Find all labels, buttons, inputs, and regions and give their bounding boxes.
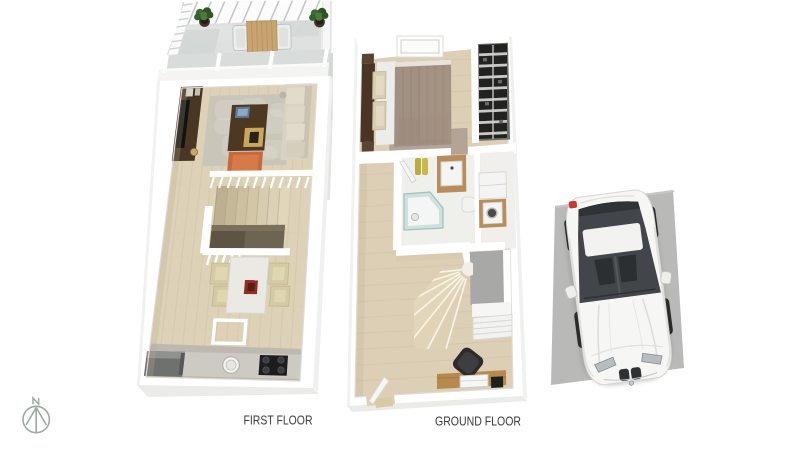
svg-text:GROUND FLOOR: GROUND FLOOR (435, 414, 521, 428)
svg-text:FIRST FLOOR: FIRST FLOOR (244, 413, 313, 427)
